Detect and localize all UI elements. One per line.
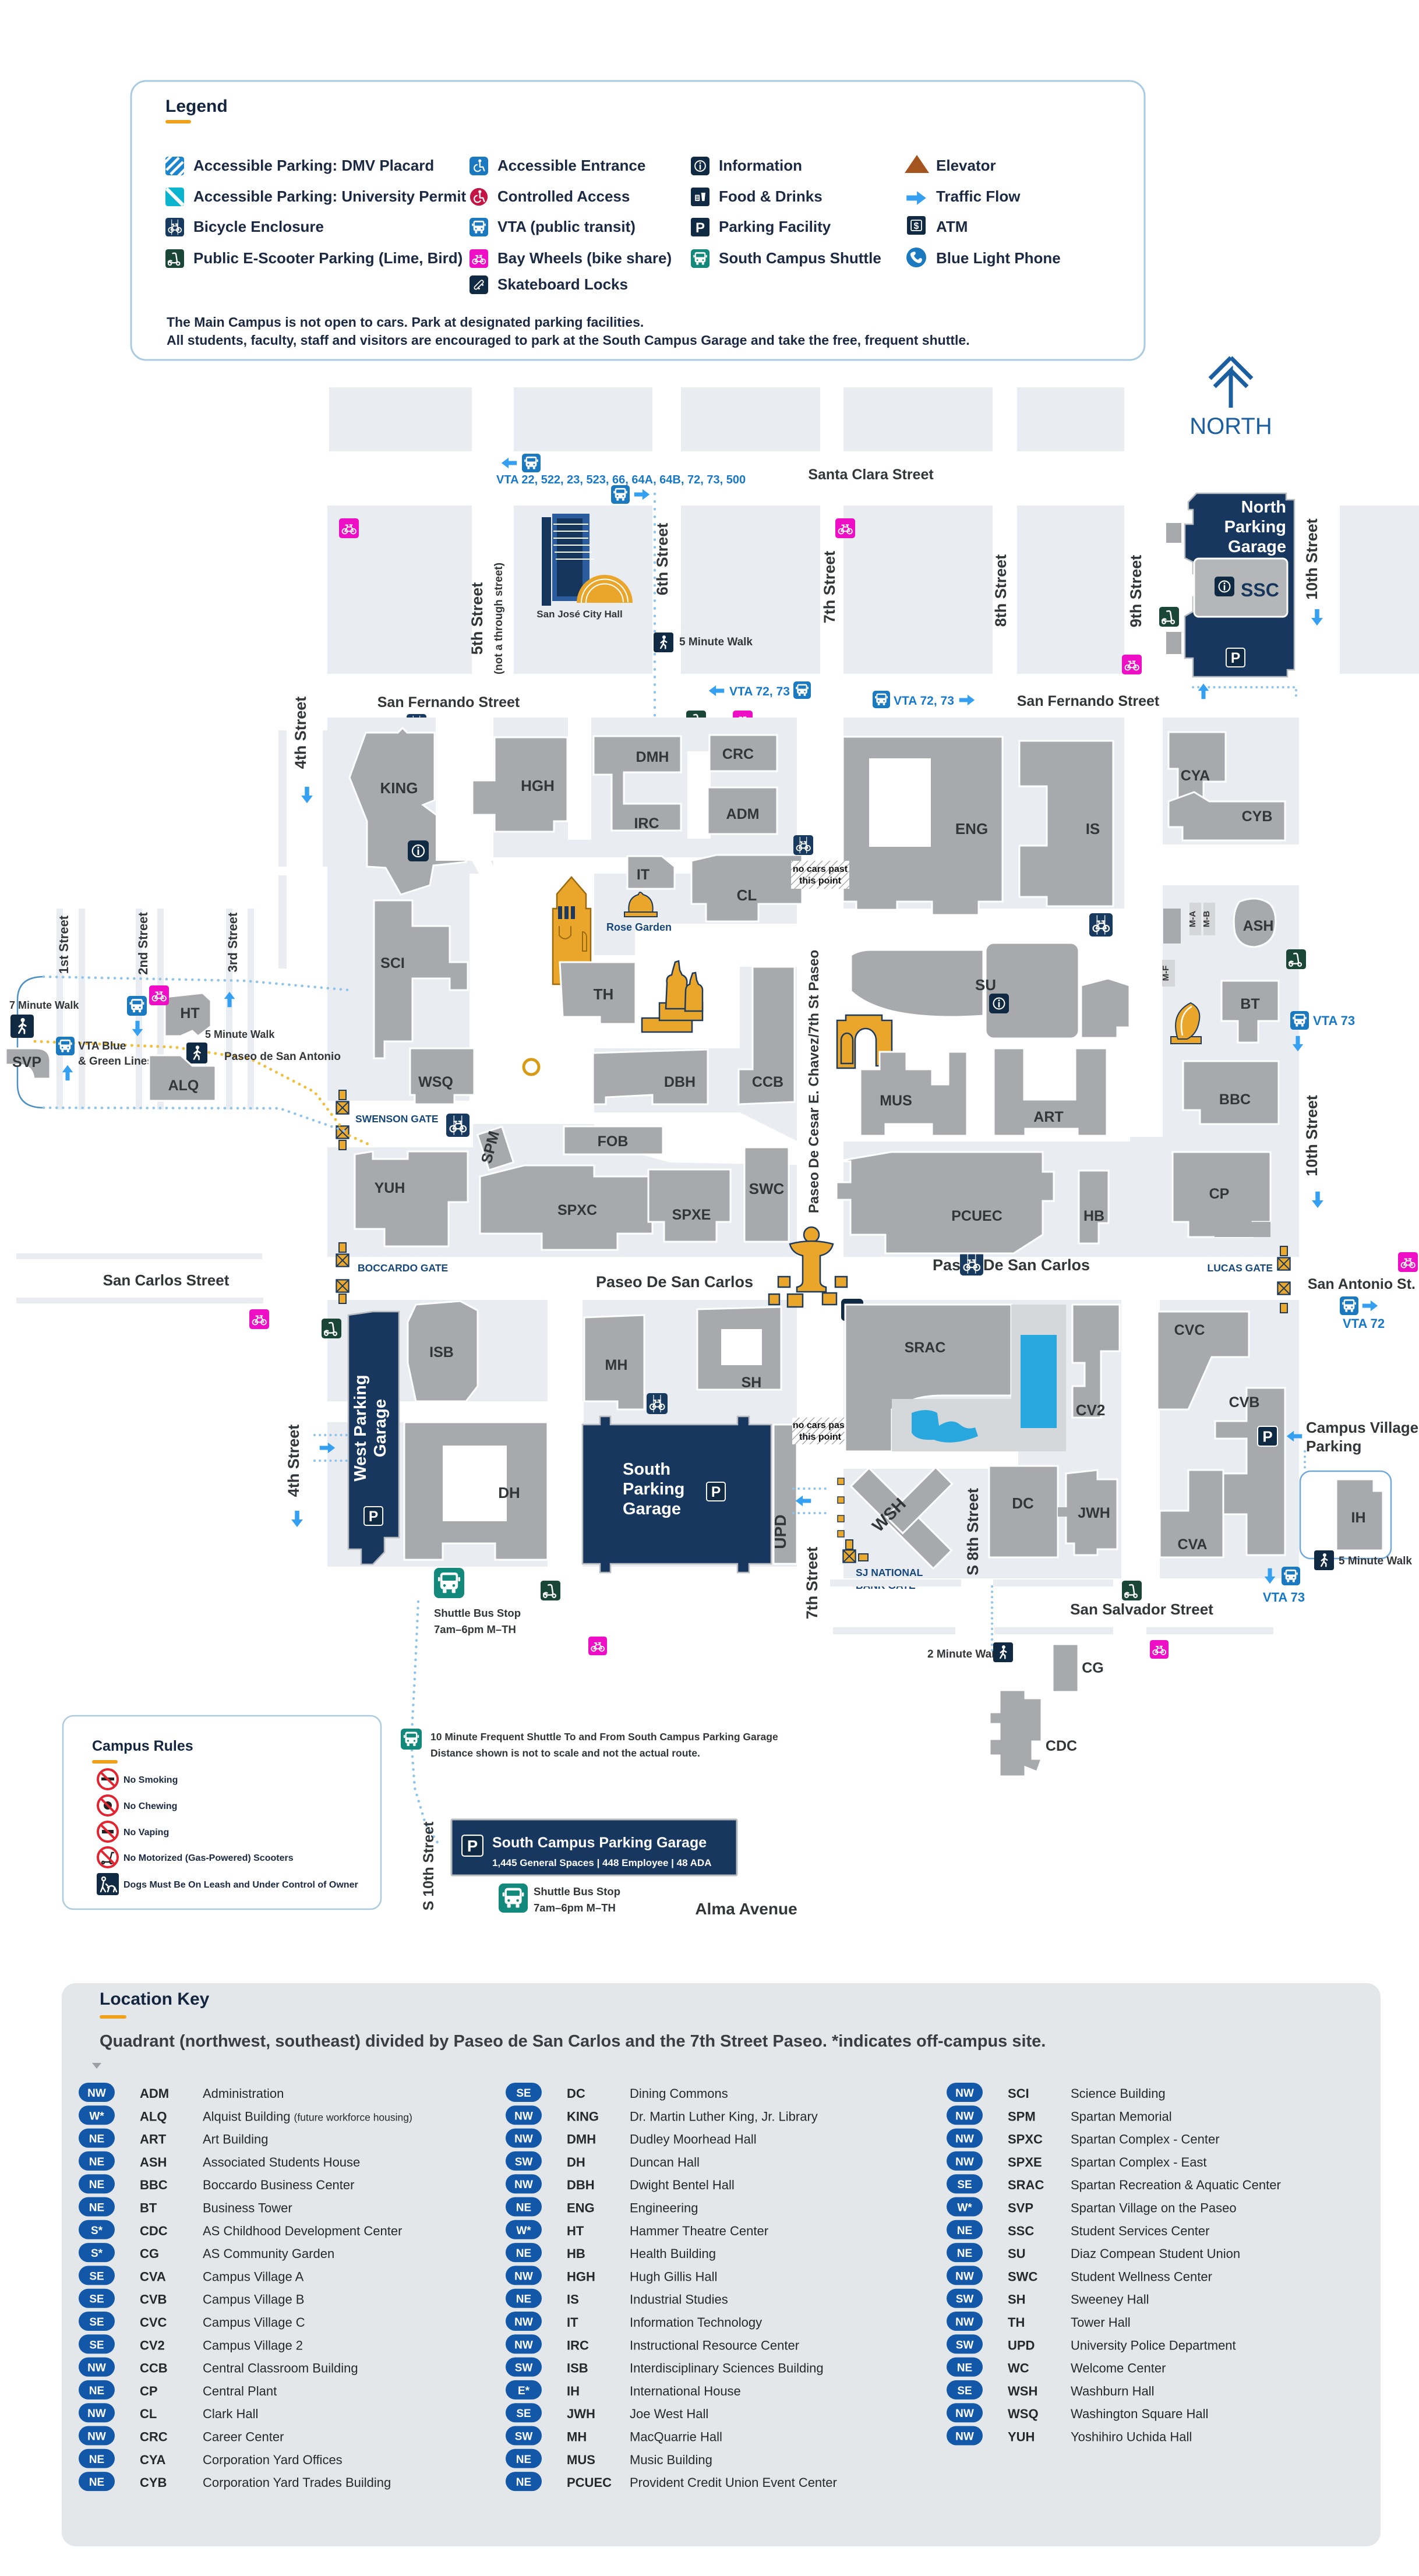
svg-text:Parking: Parking xyxy=(1224,518,1286,536)
svg-text:Campus Village 2: Campus Village 2 xyxy=(203,2338,303,2352)
svg-text:KING: KING xyxy=(567,2109,599,2123)
svg-text:JWH: JWH xyxy=(567,2407,595,2421)
svg-text:Tower Hall: Tower Hall xyxy=(1071,2315,1131,2330)
svg-text:DH: DH xyxy=(498,1484,520,1501)
svg-text:NW: NW xyxy=(955,2156,974,2168)
svg-text:West Parking: West Parking xyxy=(351,1374,370,1481)
svg-text:Campus Rules: Campus Rules xyxy=(92,1738,193,1754)
svg-text:no cars past: no cars past xyxy=(793,1420,848,1430)
svg-text:NE: NE xyxy=(89,2156,104,2168)
svg-text:No Smoking: No Smoking xyxy=(123,1775,178,1785)
svg-text:Bay Wheels (bike share): Bay Wheels (bike share) xyxy=(497,249,672,267)
svg-text:Public E-Scooter Parking (Lime: Public E-Scooter Parking (Lime, Bird) xyxy=(193,249,463,267)
svg-text:1st Street: 1st Street xyxy=(57,915,71,974)
svg-text:WSQ: WSQ xyxy=(418,1074,453,1090)
svg-text:Central Classroom Building: Central Classroom Building xyxy=(203,2361,358,2376)
svg-text:Controlled Access: Controlled Access xyxy=(497,188,630,205)
svg-text:NW: NW xyxy=(514,2339,533,2351)
svg-text:Dining Commons: Dining Commons xyxy=(630,2086,728,2101)
svg-text:CYB: CYB xyxy=(140,2475,167,2490)
svg-text:NW: NW xyxy=(87,2362,106,2374)
svg-text:BBC: BBC xyxy=(140,2178,168,2192)
svg-text:MH: MH xyxy=(567,2430,587,2444)
svg-text:VTA 72: VTA 72 xyxy=(1343,1316,1385,1331)
svg-text:Accessible Parking: University: Accessible Parking: University Permit xyxy=(193,188,467,205)
svg-text:VTA 72, 73: VTA 72, 73 xyxy=(729,685,790,698)
svg-text:Alma Avenue: Alma Avenue xyxy=(695,1900,797,1918)
svg-text:IH: IH xyxy=(567,2384,580,2398)
svg-text:PCUEC: PCUEC xyxy=(567,2475,612,2490)
svg-text:ATM: ATM xyxy=(936,218,968,235)
svg-text:DBH: DBH xyxy=(664,1074,696,1090)
svg-text:AS Childhood Development Cente: AS Childhood Development Center xyxy=(203,2224,402,2238)
svg-text:CP: CP xyxy=(140,2384,158,2398)
svg-text:CRC: CRC xyxy=(140,2430,168,2444)
svg-text:10 Minute Frequent Shuttle To: 10 Minute Frequent Shuttle To and From S… xyxy=(430,1731,778,1743)
svg-text:Spartan Memorial: Spartan Memorial xyxy=(1071,2109,1172,2123)
svg-text:NE: NE xyxy=(957,2248,972,2260)
svg-text:SCI: SCI xyxy=(380,955,405,971)
svg-text:Distance shown is not to scale: Distance shown is not to scale and not t… xyxy=(430,1747,700,1759)
svg-text:VTA Blue: VTA Blue xyxy=(78,1040,126,1052)
svg-text:7th Street: 7th Street xyxy=(821,551,838,624)
svg-text:IH: IH xyxy=(1351,1510,1366,1526)
svg-text:Hugh Gillis Hall: Hugh Gillis Hall xyxy=(630,2269,717,2284)
svg-text:NE: NE xyxy=(89,2385,104,2397)
svg-text:Spartan Complex - East: Spartan Complex - East xyxy=(1071,2155,1207,2169)
svg-text:S 8th Street: S 8th Street xyxy=(964,1488,982,1575)
svg-text:Associated Students House: Associated Students House xyxy=(203,2155,360,2169)
svg-text:FOB: FOB xyxy=(598,1133,629,1150)
svg-text:5 Minute Walk: 5 Minute Walk xyxy=(205,1029,275,1040)
svg-text:Central Plant: Central Plant xyxy=(203,2384,277,2398)
svg-text:SWENSON GATE: SWENSON GATE xyxy=(355,1113,439,1125)
svg-text:SE: SE xyxy=(957,2385,972,2397)
svg-text:Paseo de San Antonio: Paseo de San Antonio xyxy=(224,1051,341,1063)
svg-text:7am–6pm M–TH: 7am–6pm M–TH xyxy=(434,1623,516,1635)
svg-text:7th Street: 7th Street xyxy=(803,1547,821,1620)
svg-text:Accessible Parking: DMV Placar: Accessible Parking: DMV Placard xyxy=(193,157,434,174)
svg-text:SH: SH xyxy=(742,1374,762,1391)
svg-text:CYA: CYA xyxy=(1181,768,1210,784)
svg-text:SPXE: SPXE xyxy=(1008,2155,1042,2169)
svg-text:Clark Hall: Clark Hall xyxy=(203,2407,258,2421)
svg-text:W*: W* xyxy=(957,2202,972,2214)
svg-text:JWH: JWH xyxy=(1078,1505,1110,1521)
svg-text:Location Key: Location Key xyxy=(100,1990,210,2009)
svg-text:NW: NW xyxy=(955,2316,974,2328)
svg-text:5th Street: 5th Street xyxy=(468,582,486,655)
svg-text:Quadrant (northwest, southeast: Quadrant (northwest, southeast) divided … xyxy=(100,2032,1046,2051)
svg-text:SSC: SSC xyxy=(1241,579,1279,600)
svg-text:Campus Village C: Campus Village C xyxy=(203,2315,305,2330)
svg-text:NW: NW xyxy=(514,2316,533,2328)
svg-text:7am–6pm M–TH: 7am–6pm M–TH xyxy=(534,1902,616,1914)
svg-text:San Fernando Street: San Fernando Street xyxy=(1017,693,1160,709)
svg-text:NW: NW xyxy=(955,2087,974,2100)
svg-text:2nd Street: 2nd Street xyxy=(136,912,150,975)
svg-text:SW: SW xyxy=(956,2339,974,2351)
svg-text:ASH: ASH xyxy=(1243,918,1274,934)
svg-text:Garage: Garage xyxy=(623,1500,681,1518)
svg-text:DC: DC xyxy=(567,2086,585,2101)
svg-text:ISB: ISB xyxy=(429,1344,454,1361)
svg-text:NE: NE xyxy=(516,2202,531,2214)
svg-text:Corporation Yard Offices: Corporation Yard Offices xyxy=(203,2453,343,2467)
svg-text:DC: DC xyxy=(1012,1494,1034,1512)
svg-text:HT: HT xyxy=(567,2224,584,2238)
svg-text:Information Technology: Information Technology xyxy=(630,2315,762,2330)
svg-text:CVB: CVB xyxy=(140,2292,167,2307)
svg-text:Santa Clara Street: Santa Clara Street xyxy=(808,467,934,483)
svg-text:North: North xyxy=(1241,498,1286,517)
svg-text:CV2: CV2 xyxy=(1076,1401,1106,1419)
svg-text:Skateboard Locks: Skateboard Locks xyxy=(497,275,628,293)
svg-text:Student Wellness Center: Student Wellness Center xyxy=(1071,2269,1212,2284)
svg-text:S*: S* xyxy=(91,2248,103,2260)
svg-text:Spartan Complex - Center: Spartan Complex - Center xyxy=(1071,2132,1220,2147)
svg-text:S*: S* xyxy=(91,2225,103,2237)
svg-text:Corporation Yard Trades Buildi: Corporation Yard Trades Building xyxy=(203,2475,391,2490)
svg-text:Sweeney Hall: Sweeney Hall xyxy=(1071,2292,1149,2307)
svg-text:WSH: WSH xyxy=(1008,2384,1037,2398)
svg-text:Shuttle Bus Stop: Shuttle Bus Stop xyxy=(434,1607,521,1619)
svg-text:Washington Square Hall: Washington Square Hall xyxy=(1071,2407,1208,2421)
svg-text:NE: NE xyxy=(516,2476,531,2489)
svg-text:TH: TH xyxy=(594,985,614,1003)
svg-text:SVP: SVP xyxy=(12,1054,41,1070)
svg-text:NW: NW xyxy=(87,2087,106,2100)
svg-text:NE: NE xyxy=(957,2362,972,2374)
svg-text:CRC: CRC xyxy=(722,746,754,762)
svg-text:UPD: UPD xyxy=(771,1514,789,1549)
svg-text:Art Building: Art Building xyxy=(203,2132,269,2147)
svg-text:All students, faculty, staff a: All students, faculty, staff and visitor… xyxy=(167,333,970,348)
svg-text:Traffic Flow: Traffic Flow xyxy=(936,188,1021,205)
svg-text:Spartan Village on the Paseo: Spartan Village on the Paseo xyxy=(1071,2201,1237,2215)
svg-text:International House: International House xyxy=(630,2384,741,2398)
svg-text:YUH: YUH xyxy=(375,1180,405,1196)
svg-text:Instructional Resource Center: Instructional Resource Center xyxy=(630,2338,799,2352)
svg-text:BBC: BBC xyxy=(1219,1091,1251,1108)
svg-text:DMH: DMH xyxy=(567,2132,596,2147)
svg-text:W*: W* xyxy=(516,2225,531,2237)
svg-text:NE: NE xyxy=(516,2294,531,2306)
svg-text:Washburn Hall: Washburn Hall xyxy=(1071,2384,1154,2398)
svg-text:Food & Drinks: Food & Drinks xyxy=(719,188,823,205)
svg-text:UPD: UPD xyxy=(1008,2338,1035,2352)
svg-text:San Carlos Street: San Carlos Street xyxy=(103,1271,230,1289)
svg-text:this point: this point xyxy=(799,876,842,886)
svg-text:HGH: HGH xyxy=(521,777,555,794)
svg-text:ART: ART xyxy=(140,2132,167,2147)
svg-text:CYB: CYB xyxy=(1242,808,1273,825)
svg-text:ADM: ADM xyxy=(140,2086,169,2101)
svg-text:NE: NE xyxy=(516,2248,531,2260)
svg-text:Yoshihiro Uchida Hall: Yoshihiro Uchida Hall xyxy=(1071,2430,1192,2444)
svg-text:Administration: Administration xyxy=(203,2086,284,2101)
svg-text:ENG: ENG xyxy=(955,820,988,838)
svg-text:9th Street: 9th Street xyxy=(1127,555,1145,628)
svg-text:8th Street: 8th Street xyxy=(992,554,1009,627)
svg-text:SW: SW xyxy=(515,2431,533,2443)
svg-text:(not a through street): (not a through street) xyxy=(493,563,505,674)
svg-text:NW: NW xyxy=(514,2110,533,2122)
svg-text:NE: NE xyxy=(89,2476,104,2489)
svg-text:Parking Facility: Parking Facility xyxy=(719,218,831,235)
svg-text:Industrial Studies: Industrial Studies xyxy=(630,2292,728,2307)
svg-text:HGH: HGH xyxy=(567,2269,595,2284)
svg-text:MUS: MUS xyxy=(880,1093,912,1109)
svg-text:5 Minute Walk: 5 Minute Walk xyxy=(1339,1555,1412,1567)
svg-text:ENG: ENG xyxy=(567,2201,595,2215)
svg-text:ADM: ADM xyxy=(726,806,760,822)
svg-text:MacQuarrie Hall: MacQuarrie Hall xyxy=(630,2430,722,2444)
svg-text:& Green Lines: & Green Lines xyxy=(78,1055,153,1068)
svg-text:MUS: MUS xyxy=(567,2453,595,2467)
svg-text:NE: NE xyxy=(89,2202,104,2214)
svg-text:SU: SU xyxy=(1008,2246,1026,2261)
svg-text:CL: CL xyxy=(737,886,757,904)
svg-text:San Fernando Street: San Fernando Street xyxy=(377,694,520,711)
svg-text:NW: NW xyxy=(955,2133,974,2146)
svg-text:South Campus Parking Garage: South Campus Parking Garage xyxy=(492,1835,707,1851)
svg-text:SE: SE xyxy=(89,2270,104,2282)
svg-text:CVB: CVB xyxy=(1229,1394,1260,1411)
svg-text:S 10th Street: S 10th Street xyxy=(421,1821,437,1911)
svg-text:NE: NE xyxy=(89,2179,104,2191)
svg-text:ALQ: ALQ xyxy=(168,1077,199,1094)
svg-text:MH: MH xyxy=(605,1357,628,1373)
svg-text:Accessible Entrance: Accessible Entrance xyxy=(497,157,645,174)
svg-text:Student Services Center: Student Services Center xyxy=(1071,2224,1209,2238)
svg-text:M-F: M-F xyxy=(1161,966,1171,981)
svg-text:San Salvador Street: San Salvador Street xyxy=(1070,1600,1213,1618)
svg-text:Health Building: Health Building xyxy=(630,2246,716,2261)
svg-text:NW: NW xyxy=(514,2179,533,2191)
svg-text:E*: E* xyxy=(518,2385,530,2397)
svg-text:BOCCARDO GATE: BOCCARDO GATE xyxy=(358,1262,448,1274)
svg-text:The Main Campus is not open to: The Main Campus is not open to cars. Par… xyxy=(167,315,644,330)
svg-text:Bicycle Enclosure: Bicycle Enclosure xyxy=(193,218,324,235)
svg-text:CYA: CYA xyxy=(140,2453,166,2467)
svg-text:Welcome Center: Welcome Center xyxy=(1071,2361,1166,2376)
svg-text:10th Street: 10th Street xyxy=(1303,1095,1321,1176)
svg-text:NW: NW xyxy=(514,2133,533,2146)
svg-text:VTA 22, 522, 23, 523, 66, 64A,: VTA 22, 522, 23, 523, 66, 64A, 64B, 72, … xyxy=(496,473,746,486)
svg-text:HT: HT xyxy=(180,1005,199,1022)
svg-text:SE: SE xyxy=(957,2179,972,2191)
svg-text:BT: BT xyxy=(140,2201,157,2215)
svg-text:KING: KING xyxy=(380,779,418,797)
svg-text:NE: NE xyxy=(957,2225,972,2237)
svg-text:CG: CG xyxy=(140,2246,159,2261)
svg-text:NW: NW xyxy=(955,2110,974,2122)
svg-text:7 Minute Walk: 7 Minute Walk xyxy=(9,999,79,1011)
svg-text:No Chewing: No Chewing xyxy=(123,1801,177,1811)
svg-text:SW: SW xyxy=(515,2362,533,2374)
svg-text:NORTH: NORTH xyxy=(1189,414,1272,439)
svg-text:Career Center: Career Center xyxy=(203,2430,284,2444)
svg-text:NW: NW xyxy=(87,2408,106,2420)
svg-text:AS Community Garden: AS Community Garden xyxy=(203,2246,334,2261)
svg-text:ALQ: ALQ xyxy=(140,2109,167,2123)
svg-text:Hammer Theatre Center: Hammer Theatre Center xyxy=(630,2224,768,2238)
svg-text:CDC: CDC xyxy=(1046,1738,1077,1754)
svg-text:CCB: CCB xyxy=(752,1074,783,1090)
svg-text:CV2: CV2 xyxy=(140,2338,165,2352)
svg-text:2 Minute Walk: 2 Minute Walk xyxy=(927,1648,1001,1660)
svg-text:CVA: CVA xyxy=(140,2269,166,2284)
svg-text:SE: SE xyxy=(89,2339,104,2351)
svg-text:SPXC: SPXC xyxy=(557,1202,597,1218)
svg-text:Dogs Must Be On Leash and Unde: Dogs Must Be On Leash and Under Control … xyxy=(123,1880,358,1890)
svg-text:this point: this point xyxy=(799,1432,842,1442)
svg-text:Information: Information xyxy=(719,157,802,174)
svg-text:M-A: M-A xyxy=(1188,911,1198,927)
svg-text:Legend: Legend xyxy=(165,97,228,116)
svg-text:no cars past: no cars past xyxy=(793,864,848,874)
svg-text:WC: WC xyxy=(1008,2361,1029,2376)
svg-text:VTA (public transit): VTA (public transit) xyxy=(497,218,636,235)
svg-text:IT: IT xyxy=(567,2315,578,2330)
svg-text:Paseo De San Carlos: Paseo De San Carlos xyxy=(596,1273,753,1291)
svg-text:SWC: SWC xyxy=(749,1180,785,1197)
svg-text:SW: SW xyxy=(956,2294,974,2306)
svg-text:SH: SH xyxy=(1008,2292,1026,2307)
svg-text:Parking: Parking xyxy=(1306,1437,1361,1455)
svg-text:Parking: Parking xyxy=(623,1480,684,1499)
svg-text:VTA 73: VTA 73 xyxy=(1263,1590,1305,1605)
svg-text:NW: NW xyxy=(955,2431,974,2443)
svg-text:Music Building: Music Building xyxy=(630,2453,712,2467)
svg-text:Diaz Compean Student Union: Diaz Compean Student Union xyxy=(1071,2246,1240,2261)
svg-text:No Vaping: No Vaping xyxy=(123,1828,169,1838)
svg-text:SJ NATIONAL: SJ NATIONAL xyxy=(856,1567,923,1578)
svg-text:SRAC: SRAC xyxy=(1008,2178,1044,2192)
svg-text:LUCAS GATE: LUCAS GATE xyxy=(1208,1262,1273,1274)
svg-text:Science Building: Science Building xyxy=(1071,2086,1166,2101)
svg-text:VTA 73: VTA 73 xyxy=(1313,1013,1355,1028)
svg-text:M-B: M-B xyxy=(1202,911,1212,927)
svg-text:University Police Department: University Police Department xyxy=(1071,2338,1236,2352)
svg-text:NW: NW xyxy=(955,2270,974,2282)
svg-text:Business Tower: Business Tower xyxy=(203,2201,292,2215)
svg-text:SPXE: SPXE xyxy=(672,1207,711,1223)
svg-text:Garage: Garage xyxy=(371,1399,390,1457)
svg-text:4th Street: 4th Street xyxy=(285,1425,302,1497)
svg-text:SE: SE xyxy=(516,2408,531,2420)
svg-text:NW: NW xyxy=(87,2431,106,2443)
svg-text:NW: NW xyxy=(955,2408,974,2420)
svg-text:HB: HB xyxy=(1083,1208,1104,1224)
svg-text:IS: IS xyxy=(1086,820,1100,838)
svg-text:Dr. Martin Luther King, Jr. Li: Dr. Martin Luther King, Jr. Library xyxy=(630,2109,818,2123)
svg-text:Interdisciplinary Sciences Bui: Interdisciplinary Sciences Building xyxy=(630,2361,824,2376)
svg-text:5 Minute Walk: 5 Minute Walk xyxy=(679,636,753,648)
svg-text:San Antonio St.: San Antonio St. xyxy=(1308,1276,1416,1292)
svg-text:ISB: ISB xyxy=(567,2361,588,2376)
svg-text:DMH: DMH xyxy=(636,749,669,765)
svg-text:San José City Hall: San José City Hall xyxy=(536,609,622,620)
svg-text:No Motorized (Gas-Powered) Sco: No Motorized (Gas-Powered) Scooters xyxy=(123,1853,294,1863)
svg-text:CVC: CVC xyxy=(1174,1322,1205,1338)
svg-text:DBH: DBH xyxy=(567,2178,595,2192)
svg-text:Garage: Garage xyxy=(1228,538,1286,556)
svg-text:Shuttle Bus Stop: Shuttle Bus Stop xyxy=(534,1885,620,1897)
svg-text:SE: SE xyxy=(516,2087,531,2100)
svg-text:South: South xyxy=(623,1460,670,1479)
svg-text:PCUEC: PCUEC xyxy=(951,1208,1003,1224)
svg-text:Engineering: Engineering xyxy=(630,2201,698,2215)
svg-text:Campus Village B: Campus Village B xyxy=(203,2292,304,2307)
svg-text:NW: NW xyxy=(514,2270,533,2282)
svg-text:SE: SE xyxy=(89,2316,104,2328)
svg-text:CVC: CVC xyxy=(140,2315,167,2330)
svg-text:Provident Credit Union Event C: Provident Credit Union Event Center xyxy=(630,2475,837,2490)
svg-text:NE: NE xyxy=(89,2133,104,2146)
svg-text:IRC: IRC xyxy=(567,2338,589,2352)
svg-text:SW: SW xyxy=(515,2156,533,2168)
svg-text:Blue Light Phone: Blue Light Phone xyxy=(936,249,1061,267)
svg-text:Spartan Recreation & Aquatic C: Spartan Recreation & Aquatic Center xyxy=(1071,2178,1281,2192)
svg-text:IS: IS xyxy=(567,2292,579,2307)
svg-text:SVP: SVP xyxy=(1008,2201,1033,2215)
svg-text:3rd Street: 3rd Street xyxy=(225,912,240,972)
svg-text:TH: TH xyxy=(1008,2315,1025,2330)
svg-text:6th Street: 6th Street xyxy=(654,523,671,596)
svg-text:Campus Village: Campus Village xyxy=(1306,1419,1418,1436)
svg-text:HB: HB xyxy=(567,2246,585,2261)
svg-text:Campus Village A: Campus Village A xyxy=(203,2269,304,2284)
svg-text:Joe West Hall: Joe West Hall xyxy=(630,2407,708,2421)
svg-text:10th Street: 10th Street xyxy=(1303,518,1321,600)
svg-text:NE: NE xyxy=(516,2454,531,2466)
svg-text:Alquist Building (future workf: Alquist Building (future workforce housi… xyxy=(203,2109,412,2123)
svg-text:Dudley Moorhead Hall: Dudley Moorhead Hall xyxy=(630,2132,757,2147)
svg-text:CP: CP xyxy=(1209,1186,1230,1202)
svg-text:IRC: IRC xyxy=(634,815,659,832)
svg-text:Rose Garden: Rose Garden xyxy=(606,921,672,933)
svg-text:SCI: SCI xyxy=(1008,2086,1029,2101)
svg-text:SRAC: SRAC xyxy=(905,1340,946,1356)
svg-text:ART: ART xyxy=(1033,1109,1063,1125)
svg-text:CVA: CVA xyxy=(1178,1536,1208,1553)
svg-text:SSC: SSC xyxy=(1008,2224,1034,2238)
svg-text:Dwight Bentel Hall: Dwight Bentel Hall xyxy=(630,2178,735,2192)
svg-text:CG: CG xyxy=(1082,1660,1104,1676)
svg-text:ASH: ASH xyxy=(140,2155,167,2169)
svg-text:CL: CL xyxy=(140,2407,157,2421)
svg-text:South Campus Shuttle: South Campus Shuttle xyxy=(719,249,881,267)
svg-text:SWC: SWC xyxy=(1008,2269,1037,2284)
svg-text:SPM: SPM xyxy=(1008,2109,1036,2123)
svg-text:Duncan Hall: Duncan Hall xyxy=(630,2155,700,2169)
svg-text:W*: W* xyxy=(89,2110,104,2122)
svg-text:4th Street: 4th Street xyxy=(292,697,309,769)
svg-text:SE: SE xyxy=(89,2294,104,2306)
svg-text:NE: NE xyxy=(89,2454,104,2466)
svg-text:VTA 72, 73: VTA 72, 73 xyxy=(894,694,954,708)
svg-text:1,445 General Spaces | 448 Emp: 1,445 General Spaces | 448 Employee | 48… xyxy=(492,1857,711,1868)
svg-text:YUH: YUH xyxy=(1008,2430,1035,2444)
svg-text:Paseo De San Carlos: Paseo De San Carlos xyxy=(933,1256,1090,1274)
svg-text:Paseo De Cesar E. Chavez/7th S: Paseo De Cesar E. Chavez/7th St Paseo xyxy=(806,950,822,1213)
svg-text:Elevator: Elevator xyxy=(936,157,996,174)
svg-text:SPXC: SPXC xyxy=(1008,2132,1043,2147)
svg-text:IT: IT xyxy=(637,867,650,883)
svg-text:CDC: CDC xyxy=(140,2224,168,2238)
